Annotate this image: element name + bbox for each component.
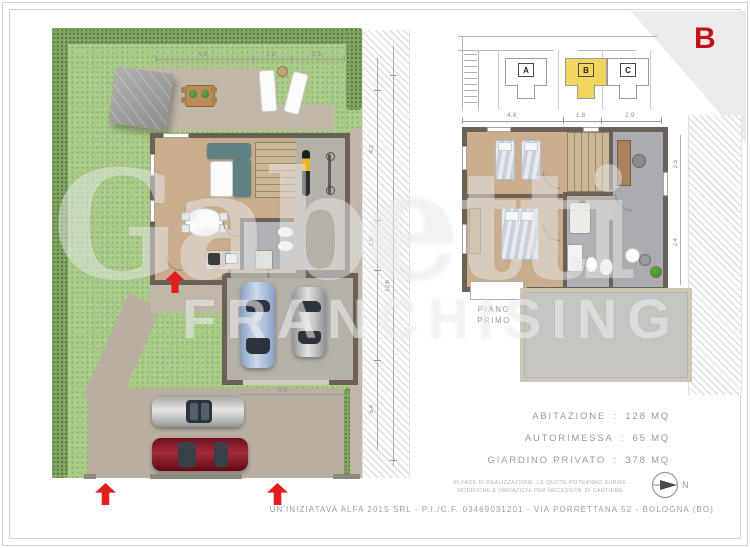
bidet (585, 256, 598, 273)
hedge-right (346, 28, 362, 110)
site-key-map: A B C (458, 30, 670, 110)
bed-single (495, 140, 515, 180)
area-row-abitazione: ABITAZIONE : 128 MQ (330, 406, 670, 428)
first-floor-dimension-line: 4.8 1.8 2.9 (462, 112, 662, 124)
road-line (458, 36, 658, 37)
dim-label: 2.4 (673, 238, 679, 246)
disclaimer: IN FASE DI REALIZZAZIONE, LE QUOTE POTRA… (436, 479, 644, 495)
side-table (625, 248, 640, 263)
dim-label: 2.9 (625, 113, 635, 119)
compass-north-label: N (682, 480, 689, 490)
bath-counter (567, 244, 583, 272)
partition-wall (467, 194, 567, 198)
lounger-table (277, 66, 288, 77)
office-chair (632, 154, 646, 168)
keymap-unit-c-tab (619, 84, 637, 99)
bed-double (501, 208, 539, 260)
dim-label: 12.6 (385, 280, 391, 292)
dining-chair (181, 212, 190, 221)
keymap-unit-a-tab (517, 84, 535, 99)
ground-floor-plan: 4.6 1.8 2.5 8.5 (52, 28, 362, 480)
pergola (108, 66, 173, 131)
road-steps (464, 54, 477, 108)
boundary-wall (333, 474, 360, 479)
garden-chair (181, 97, 187, 103)
garden-chair (211, 87, 217, 93)
dim-label: 1.8 (576, 113, 586, 119)
car-blue (241, 282, 275, 368)
staircase (255, 142, 297, 198)
partition-wall (563, 192, 567, 287)
terrace (520, 288, 692, 382)
car-silver (293, 287, 326, 357)
partition-wall (567, 192, 613, 196)
dim-label: 4.8 (507, 113, 517, 119)
staircase (567, 132, 613, 192)
window (150, 200, 155, 222)
dining-chair (181, 224, 190, 233)
boundary-wall (84, 474, 96, 479)
garden-chair (211, 97, 217, 103)
shower (569, 202, 591, 234)
plan-sheet: B A B C (0, 0, 750, 548)
sink (225, 253, 238, 264)
dim-label: 1.9 (369, 238, 375, 246)
entrance-arrow-gate (95, 483, 116, 505)
keymap-unit-c-label: C (620, 63, 636, 77)
sofa (207, 143, 251, 159)
toilet (277, 226, 294, 238)
road-line (462, 36, 463, 110)
dim-label: 8.5 (278, 388, 288, 394)
road-line (578, 50, 636, 51)
keymap-unit-a-label: A (518, 63, 534, 77)
hedge-top (52, 28, 362, 44)
landing (470, 281, 524, 300)
garden-chair (181, 87, 187, 93)
boundary-wall (150, 474, 242, 479)
parcel-line (650, 50, 651, 110)
boundary-hatch-strip-right (688, 115, 742, 395)
door-arc (543, 224, 560, 241)
plant (650, 266, 662, 278)
partition-wall (609, 220, 613, 287)
entrance-arrow-driveway (267, 483, 288, 505)
sofa-chaise (233, 159, 251, 197)
sun-lounger (259, 69, 278, 112)
car-convertible (152, 396, 244, 427)
area-row-giardino: GIARDINO PRIVATO : 378 MQ (330, 450, 670, 472)
dim-label: 2.5 (312, 52, 322, 58)
road-line (478, 50, 479, 110)
footer-company-line: UN'INIZIATAVA ALFA 2015 SRL - P.I./C.F. … (0, 505, 714, 514)
first-floor-plan: 4.8 1.8 2.9 (460, 112, 670, 294)
door-arc (165, 254, 182, 271)
first-floor-body (462, 127, 668, 292)
shower (255, 250, 273, 270)
keymap-unit-b-tab (577, 84, 595, 99)
window (583, 127, 599, 132)
dim-label: 4.2 (369, 145, 375, 153)
garden-dining-set (181, 81, 217, 109)
stove (208, 253, 220, 265)
driveway-dimension-line (240, 394, 350, 395)
side-dim-line (680, 135, 681, 285)
hedge-left (52, 28, 68, 478)
partition-wall (609, 132, 613, 190)
chair (639, 254, 651, 266)
bicycle-wheel (326, 152, 335, 161)
table-plant (189, 90, 197, 98)
window (487, 127, 511, 132)
coffee-table (210, 161, 233, 197)
window (462, 146, 467, 170)
garage-door (243, 380, 329, 385)
bed-single (521, 140, 541, 180)
house-ground (150, 133, 312, 285)
garage (222, 273, 358, 385)
table-plant (201, 90, 209, 98)
desk (617, 140, 631, 186)
area-row-autorimessa: AUTORIMESSA : 65 MQ (330, 428, 670, 450)
garage-strip (296, 133, 350, 275)
door-arc (223, 222, 238, 237)
window (163, 133, 189, 138)
compass: N (648, 467, 694, 505)
window (150, 154, 155, 176)
keymap-unit-b-label: B (578, 63, 594, 77)
dining-chair (219, 212, 228, 221)
parcel-line (558, 50, 559, 110)
unit-badge: B (694, 24, 716, 54)
toilet (599, 258, 613, 276)
dim-label: 4.6 (198, 52, 208, 58)
parcel-line (498, 50, 499, 110)
bidet (277, 240, 294, 252)
door-arc (543, 172, 560, 189)
dining-table (185, 208, 223, 237)
garden-dimension-line: 4.6 1.8 2.5 (155, 52, 345, 62)
bicycle-wheel (326, 186, 335, 195)
motorcycle (302, 150, 310, 196)
car-red (152, 438, 248, 471)
piano-primo-label: PIANO PRIMO (466, 304, 522, 326)
dim-label: 1.8 (266, 52, 276, 58)
wardrobe (469, 208, 481, 254)
window (462, 224, 467, 254)
road-line (458, 50, 554, 51)
dim-label: 2.5 (673, 160, 679, 168)
area-table: ABITAZIONE : 128 MQ AUTORIMESSA : 65 MQ … (330, 406, 670, 472)
window (663, 172, 668, 196)
